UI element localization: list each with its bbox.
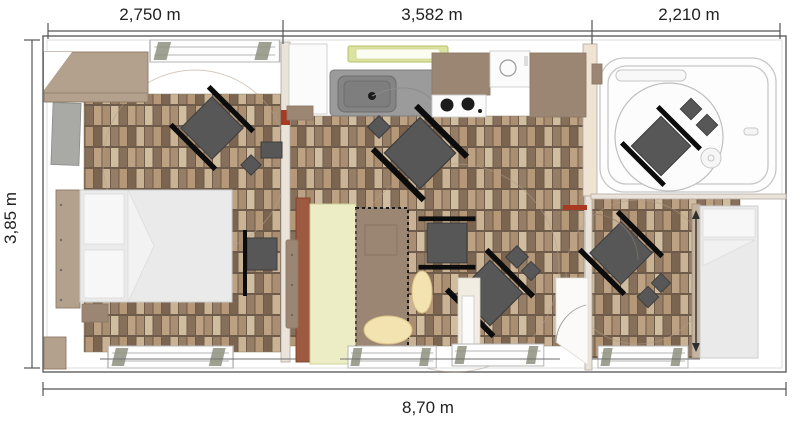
window-top-left bbox=[150, 40, 280, 62]
terrace-handle bbox=[744, 128, 758, 135]
floor-plan-page: 2,750 m 3,582 m 2,210 m 3,85 m 8,70 m bbox=[0, 0, 800, 422]
double-bed bbox=[56, 190, 232, 308]
window-bottom-right bbox=[598, 346, 688, 368]
burner bbox=[441, 99, 454, 112]
bedside-bench bbox=[82, 304, 108, 322]
bathroom-door-panel bbox=[286, 240, 298, 328]
room-terrace bbox=[592, 58, 776, 192]
corner-cabinet bbox=[44, 337, 66, 369]
window-bottom-mid-right bbox=[452, 344, 544, 366]
dimension-left: 3,85 m bbox=[1, 40, 40, 368]
terrace-bench bbox=[616, 70, 686, 81]
dim-label-top-left: 2,750 m bbox=[119, 5, 180, 24]
terrace-small-circle bbox=[701, 148, 721, 168]
single-bed bbox=[700, 206, 758, 358]
door-marker-red-right bbox=[563, 205, 587, 210]
counter-wood-right bbox=[530, 53, 586, 117]
side-stool bbox=[261, 142, 282, 158]
dim-label-top-right: 2,210 m bbox=[658, 5, 719, 24]
sofa-seat bbox=[419, 216, 476, 269]
window-bottom-mid-left bbox=[348, 346, 436, 368]
wardrobe-pale bbox=[310, 204, 356, 364]
counter-end bbox=[287, 106, 313, 120]
entry-door-leaf bbox=[462, 296, 474, 344]
terrace-wood-sliver bbox=[592, 64, 602, 84]
bed-headboard bbox=[56, 190, 80, 308]
washbasin bbox=[364, 316, 412, 344]
burner bbox=[462, 98, 475, 111]
counter-wood-left bbox=[432, 53, 490, 95]
toilet bbox=[412, 271, 432, 313]
window-bottom-left bbox=[108, 346, 233, 368]
wardrobe bbox=[44, 52, 148, 102]
tall-cabinet bbox=[289, 44, 327, 114]
dim-label-top-middle: 3,582 m bbox=[401, 5, 462, 24]
mirror-panel bbox=[51, 103, 81, 166]
floor-plan-canvas: 2,750 m 3,582 m 2,210 m 3,85 m 8,70 m bbox=[0, 0, 800, 422]
kitchen-sink-unit bbox=[490, 51, 530, 87]
cooktop bbox=[432, 95, 486, 117]
dim-label-left: 3,85 m bbox=[1, 192, 20, 244]
dimension-bottom: 8,70 m bbox=[43, 382, 786, 417]
dim-label-bottom: 8,70 m bbox=[402, 398, 454, 417]
